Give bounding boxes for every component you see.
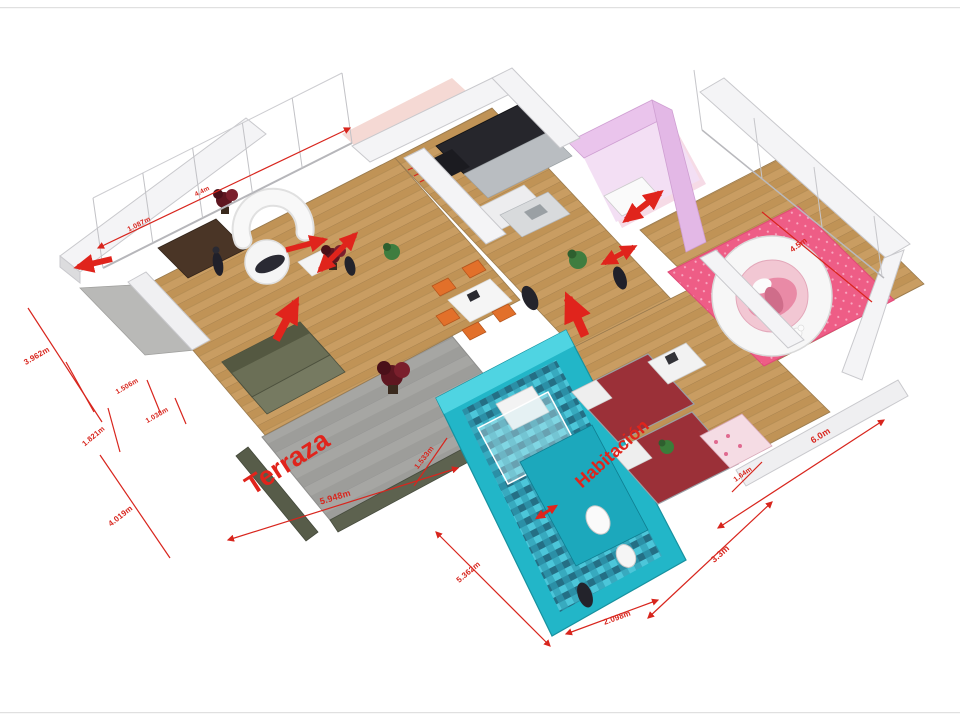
dimension-label: 4.4m bbox=[194, 185, 211, 198]
slide-top-edge bbox=[0, 7, 960, 8]
floorplan-3d-view: 1.087m 4.4m 3.962m 1.506m 1.038m 1.821m … bbox=[0, 0, 960, 720]
dimension-label: 1.506m bbox=[115, 377, 140, 396]
dimension-label: 1.821m bbox=[80, 424, 106, 448]
dim-line-4019 bbox=[100, 455, 170, 558]
dimension-label: 1.038m bbox=[145, 406, 170, 425]
dimension-label: 3.962m bbox=[22, 345, 51, 367]
dim-line-left-outer bbox=[28, 308, 102, 422]
dimension-label: 2.098m bbox=[602, 609, 632, 627]
slide-bottom-edge bbox=[0, 712, 960, 713]
dim-line-1038 bbox=[175, 398, 186, 424]
dim-line-1821b bbox=[108, 408, 120, 452]
dim-line-1506 bbox=[147, 380, 160, 412]
dimension-label: 5.362m bbox=[455, 560, 482, 585]
dimension-label: 3.3m bbox=[709, 543, 732, 565]
slide-canvas: 1.087m 4.4m 3.962m 1.506m 1.038m 1.821m … bbox=[0, 0, 960, 720]
dim-line-1821a bbox=[66, 362, 94, 412]
dimension-label: 4.019m bbox=[107, 504, 135, 529]
